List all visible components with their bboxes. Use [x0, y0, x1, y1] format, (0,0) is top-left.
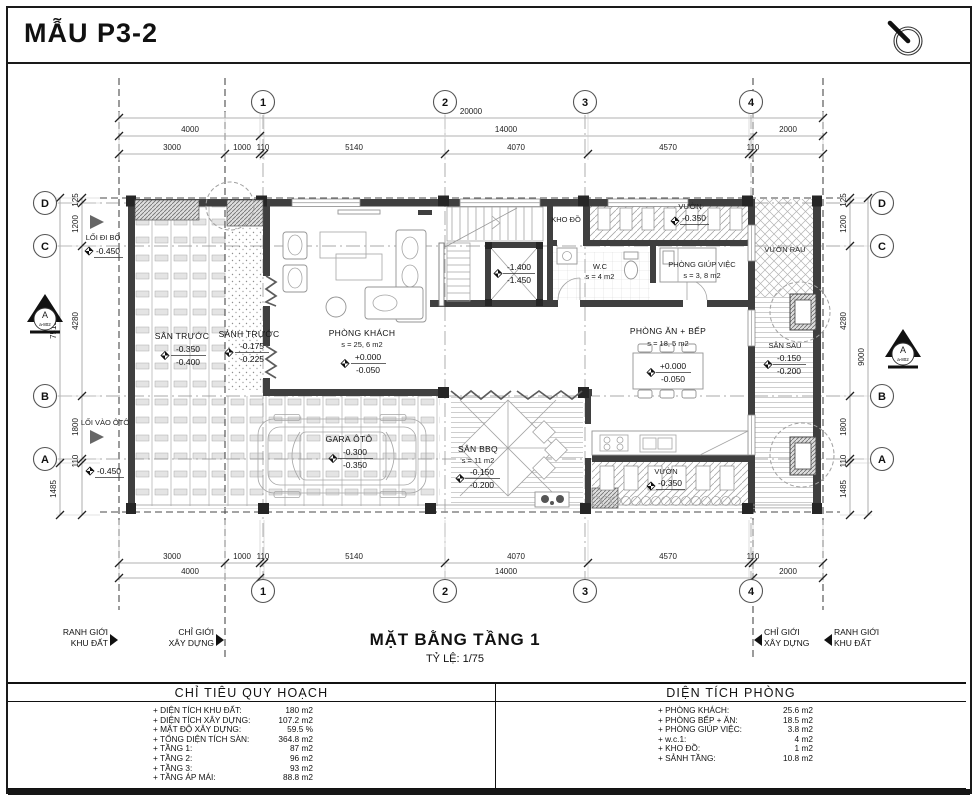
- svg-text:s = 18, 5 m2: s = 18, 5 m2: [647, 339, 688, 348]
- svg-text:+0.000: +0.000: [660, 361, 687, 371]
- svg-text:C: C: [41, 241, 49, 253]
- svg-text:LỐI VÀO ÔTÔ: LỐI VÀO ÔTÔ: [81, 417, 130, 427]
- room-label: KHO ĐỒ: [551, 214, 581, 224]
- svg-text:2: 2: [442, 586, 448, 598]
- svg-text:125: 125: [839, 193, 848, 207]
- svg-text:LỐI ĐI BỘ: LỐI ĐI BỘ: [86, 232, 121, 242]
- svg-text:A: A: [900, 345, 906, 355]
- svg-text:A: A: [42, 310, 48, 320]
- boundary-arrow-icon: [110, 634, 118, 646]
- boundary-labels-layer: RANH GIỚI KHU ĐẤT CHỈ GIỚI XÂY DỰNG CHỈ …: [63, 626, 879, 665]
- room-label: VƯỜN: [678, 202, 701, 211]
- svg-text:A: A: [878, 454, 886, 466]
- top-dimension-labels: 20000 4000 14000 2000 3000 1000 110 5140…: [163, 107, 797, 152]
- svg-text:KHU ĐẤT: KHU ĐẤT: [834, 638, 871, 648]
- title-band: MẪU P3-2: [8, 8, 970, 64]
- svg-text:4570: 4570: [659, 143, 677, 152]
- svg-text:-0.350: -0.350: [176, 344, 200, 354]
- svg-text:1485: 1485: [839, 480, 848, 498]
- svg-text:4280: 4280: [71, 312, 80, 330]
- svg-text:-0.350: -0.350: [343, 460, 367, 470]
- room-label: PHÒNG ĂN + BẾP: [630, 326, 706, 336]
- svg-text:a-802: a-802: [39, 322, 51, 327]
- room-areas-table: DIỆN TÍCH PHÒNG + PHÒNG KHÁCH:25.6 m2 + …: [496, 684, 966, 788]
- svg-text:2000: 2000: [779, 567, 797, 576]
- svg-text:2: 2: [442, 97, 448, 109]
- svg-text:110: 110: [257, 552, 270, 561]
- plan-scale: TỶ LỆ: 1/75: [426, 652, 484, 665]
- svg-text:-0.050: -0.050: [661, 374, 685, 384]
- svg-text:4: 4: [748, 97, 755, 109]
- folding-door: [266, 276, 276, 306]
- svg-text:-0.450: -0.450: [97, 466, 121, 476]
- folding-door: [266, 346, 276, 378]
- room-areas-table-title: DIỆN TÍCH PHÒNG: [496, 684, 966, 702]
- svg-text:3: 3: [582, 586, 588, 598]
- svg-text:XÂY DỰNG: XÂY DỰNG: [169, 638, 214, 648]
- stairs-elevator-layer: [439, 207, 543, 306]
- svg-text:3000: 3000: [163, 552, 181, 561]
- svg-text:-0.225: -0.225: [240, 354, 264, 364]
- svg-text:-0.150: -0.150: [777, 353, 801, 363]
- access-labels-layer: LỐI ĐI BỘ -0.450 LỐI VÀO ÔTÔ -0.450: [81, 215, 130, 478]
- svg-text:RANH GIỚI: RANH GIỚI: [834, 627, 879, 637]
- svg-text:D: D: [878, 198, 886, 210]
- room-label: SÂN TRƯỚC: [155, 331, 209, 341]
- svg-text:-0.200: -0.200: [777, 366, 801, 376]
- svg-text:110: 110: [71, 454, 80, 467]
- svg-text:110: 110: [747, 143, 760, 152]
- folding-door: [517, 391, 582, 399]
- svg-text:-0.350: -0.350: [682, 213, 706, 223]
- svg-text:5140: 5140: [345, 143, 363, 152]
- svg-text:1: 1: [260, 97, 266, 109]
- svg-text:-1.400: -1.400: [507, 262, 531, 272]
- door-swing: [687, 280, 707, 300]
- boundary-arrow-icon: [754, 634, 762, 646]
- svg-text:CHỈ GIỚI: CHỈ GIỚI: [178, 626, 214, 637]
- svg-text:1800: 1800: [71, 418, 80, 436]
- svg-text:3000: 3000: [163, 143, 181, 152]
- svg-text:+0.000: +0.000: [355, 352, 382, 362]
- svg-text:-0.400: -0.400: [176, 357, 200, 367]
- svg-text:125: 125: [71, 193, 80, 207]
- boundary-arrow-icon: [216, 634, 224, 646]
- svg-text:s = 3, 8 m2: s = 3, 8 m2: [683, 271, 720, 280]
- section-marker: A a-802: [885, 329, 921, 367]
- svg-text:1000: 1000: [233, 552, 251, 561]
- room-label: SÂN SAU: [769, 341, 802, 350]
- room-label: VƯỜN: [654, 467, 677, 476]
- room-label: GARA ÔTÔ: [326, 434, 373, 444]
- sheet-bottom-bar: [8, 789, 970, 795]
- svg-text:B: B: [41, 391, 49, 403]
- svg-text:B: B: [878, 391, 886, 403]
- svg-text:-0.300: -0.300: [343, 447, 367, 457]
- svg-text:CHỈ GIỚI: CHỈ GIỚI: [764, 626, 800, 637]
- room-label: W.C: [593, 262, 608, 271]
- svg-text:2000: 2000: [779, 125, 797, 134]
- room-label: SÂN BBQ: [458, 444, 498, 454]
- svg-text:3: 3: [582, 97, 588, 109]
- boundary-arrow-icon: [824, 634, 832, 646]
- svg-text:1485: 1485: [49, 480, 58, 498]
- svg-text:-1.450: -1.450: [507, 275, 531, 285]
- table-row: + SẢNH TẦNG:10.8 m2: [658, 754, 813, 764]
- svg-text:-0.200: -0.200: [470, 480, 494, 490]
- svg-text:4570: 4570: [659, 552, 677, 561]
- architectural-sheet: { "sheet": { "title": "MẪU P3-2", "plan_…: [0, 0, 978, 800]
- svg-text:20000: 20000: [460, 107, 483, 116]
- svg-text:1800: 1800: [839, 418, 848, 436]
- walk-arrow-icon: [90, 215, 104, 229]
- svg-text:D: D: [41, 198, 49, 210]
- room-label: SẢNH TRƯỚC: [219, 328, 280, 339]
- svg-text:XÂY DỰNG: XÂY DỰNG: [764, 638, 809, 648]
- summary-tables: CHỈ TIÊU QUY HOẠCH + DIỆN TÍCH KHU ĐẤT:1…: [8, 682, 966, 790]
- north-compass-icon: [884, 16, 930, 62]
- room-label: PHÒNG GIÚP VIỆC: [668, 260, 736, 269]
- svg-text:4000: 4000: [181, 125, 199, 134]
- svg-text:KHU ĐẤT: KHU ĐẤT: [71, 638, 108, 648]
- svg-text:-0.450: -0.450: [96, 246, 120, 256]
- right-dimension-labels: 125 1200 4280 1800 110 1485 9000: [839, 193, 866, 498]
- svg-text:110: 110: [839, 454, 848, 467]
- svg-text:1200: 1200: [71, 215, 80, 233]
- svg-text:110: 110: [257, 143, 270, 152]
- sheet-title: MẪU P3-2: [24, 18, 970, 49]
- svg-text:4000: 4000: [181, 567, 199, 576]
- svg-text:4070: 4070: [507, 552, 525, 561]
- plan-title: MẶT BẰNG TẦNG 1: [370, 630, 541, 649]
- svg-text:4: 4: [748, 586, 755, 598]
- svg-text:s = 4 m2: s = 4 m2: [586, 272, 615, 281]
- svg-text:s = 25, 6 m2: s = 25, 6 m2: [341, 340, 382, 349]
- svg-text:1200: 1200: [839, 215, 848, 233]
- svg-text:-0.350: -0.350: [658, 478, 682, 488]
- svg-text:14000: 14000: [495, 567, 518, 576]
- car-arrow-icon: [90, 430, 104, 444]
- svg-text:4070: 4070: [507, 143, 525, 152]
- svg-text:-0.175: -0.175: [240, 341, 264, 351]
- svg-text:1000: 1000: [233, 143, 251, 152]
- svg-text:C: C: [878, 241, 886, 253]
- table-row: + TẦNG ÁP MÁI:88.8 m2: [153, 773, 313, 783]
- room-label: PHÒNG KHÁCH: [329, 328, 396, 338]
- svg-text:RANH GIỚI: RANH GIỚI: [63, 627, 108, 637]
- svg-text:-0.150: -0.150: [470, 467, 494, 477]
- svg-text:s = 11 m2: s = 11 m2: [462, 456, 495, 465]
- svg-text:110: 110: [747, 552, 760, 561]
- planning-table-title: CHỈ TIÊU QUY HOẠCH: [8, 684, 495, 702]
- svg-text:-0.050: -0.050: [356, 365, 380, 375]
- floor-plan-drawing: 20000 4000 14000 2000 3000 1000 110 5140…: [0, 62, 978, 682]
- floor-plan-area: 20000 4000 14000 2000 3000 1000 110 5140…: [0, 62, 978, 682]
- bbq-grill: [535, 492, 569, 507]
- svg-text:a-802: a-802: [897, 357, 909, 362]
- svg-text:4280: 4280: [839, 312, 848, 330]
- svg-text:9000: 9000: [857, 348, 866, 366]
- svg-text:5140: 5140: [345, 552, 363, 561]
- svg-text:14000: 14000: [495, 125, 518, 134]
- room-label: VƯỜN RAU: [764, 245, 805, 254]
- svg-text:1: 1: [260, 586, 266, 598]
- planning-criteria-table: CHỈ TIÊU QUY HOẠCH + DIỆN TÍCH KHU ĐẤT:1…: [8, 684, 496, 788]
- svg-text:A: A: [41, 454, 49, 466]
